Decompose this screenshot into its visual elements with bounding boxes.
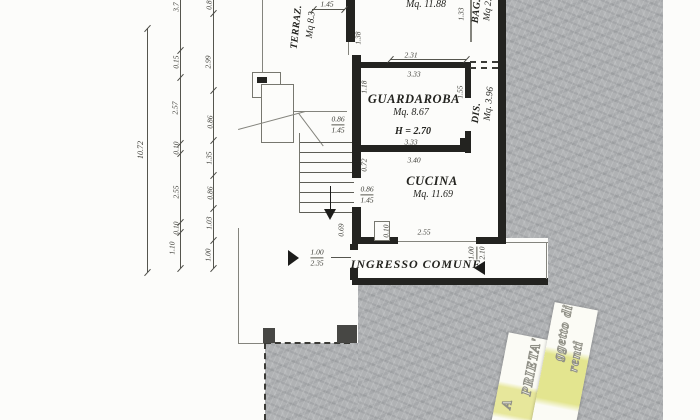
neighbour-wall-block-left [263, 328, 275, 343]
cucina-area-label: Mq. 11.69 [413, 190, 453, 200]
dim-overall: 10.72 [137, 141, 145, 159]
neighbour-wall-block-right [337, 325, 357, 343]
corridor-bottom-wall [352, 278, 548, 285]
dim-inner-6: 1.00 [204, 248, 212, 261]
halftone-bottomleft-block [265, 343, 358, 420]
dim-line-entry-left [331, 257, 351, 258]
dim-cucina-pillar: 0.10 [382, 224, 390, 237]
stair-door-height: 1.45 [331, 124, 344, 135]
stair-down-arrow-icon [324, 209, 336, 220]
cucina-name-label: CUCINA [406, 175, 458, 188]
guardaroba-height-label: H = 2.70 [395, 127, 431, 137]
dim-top-opening: 1.45 [320, 0, 333, 8]
entry-left-door-width: 1.00 [310, 247, 323, 256]
dim-cucina-top: 3.33 [404, 138, 417, 146]
dis-name-label: DIS. [471, 102, 483, 124]
dim-line-guardaroba [390, 59, 466, 60]
dim-tick [210, 265, 217, 272]
dim-cucina-left: 0.72 [360, 158, 368, 171]
dim-guardaroba-top: 2.31 [404, 51, 417, 59]
dim-bagno-door: 1.33 [457, 7, 465, 20]
boundary-dashed-vertical [264, 343, 266, 420]
cucina-bottom-wall-right [476, 237, 506, 244]
stair-door-width: 0.86 [331, 114, 344, 123]
cucina-opening-line [398, 241, 478, 242]
wall-stub [460, 138, 467, 145]
dim-tick [177, 265, 184, 272]
cucina-door-height: 1.45 [360, 194, 373, 205]
dim-inner-5: 1.03 [205, 216, 213, 229]
dim-wall-upper: 1.38 [354, 31, 362, 44]
staircase [299, 133, 354, 213]
guardaroba-area-label: Mq. 8.67 [393, 108, 429, 118]
shaft-wall-bar [257, 77, 267, 83]
neighbour-left-line [238, 228, 239, 343]
corridor-top-line [506, 242, 548, 243]
ingresso-name-label: INGRESSO COMUNE [351, 258, 482, 270]
entry-left-door-marker-icon [288, 250, 299, 266]
dim-wall-lower: 1.18 [360, 80, 368, 93]
dim-tick [144, 269, 151, 276]
dim-cucina-bottom: 2.55 [417, 228, 430, 236]
dim-inner-2: 0.86 [206, 115, 214, 128]
dim-cucina-top2: 3.40 [407, 156, 420, 164]
dim-inner-1: 2.99 [204, 55, 212, 68]
dim-inner-4: 0.86 [206, 186, 214, 199]
east-outer-wall [498, 0, 506, 240]
stair-door-size: 0.86 1.45 [331, 115, 344, 134]
dim-guardaroba-top2: 3.33 [407, 70, 420, 78]
dim-inner-3: 1.35 [205, 151, 213, 164]
shaft-box-large [261, 84, 294, 143]
corridor-end-line [546, 242, 547, 279]
entry-left-door-height: 2.35 [310, 257, 323, 268]
dim-mid-4: 2.55 [172, 185, 180, 198]
cucina-door-width: 0.86 [360, 184, 373, 193]
dim-line-top-opening [312, 9, 345, 10]
neighbour-bottom-line [238, 343, 265, 344]
guardaroba-name-label: GUARDAROBA [368, 93, 460, 106]
soggiorno-area-label: Mq. 11.88 [406, 0, 446, 10]
dis-area-label: Mq. 3.96 [483, 87, 496, 122]
dim-mid-2: 2.57 [171, 101, 179, 114]
bagno-area-label: Mq 2. [483, 0, 495, 22]
dim-line-overall [147, 28, 148, 272]
guardaroba-top-wall [361, 62, 467, 68]
terrazza-area-label: Mq 8.3 [306, 11, 318, 39]
cucina-door-size: 0.86 1.45 [360, 185, 373, 204]
dim-mid-1: 0.15 [172, 55, 180, 68]
dim-mid-6: 1.10 [168, 241, 176, 254]
floor-plan-page: 10.72 3.7 0.15 2.57 0.10 2.55 0.10 1.10 … [0, 0, 700, 420]
dim-mid-0: 3.7 [172, 2, 180, 11]
terrazza-name-label: TERRAZ. [290, 4, 305, 49]
corridor-extension [506, 238, 548, 278]
dim-inner-0: 0.8 [205, 0, 213, 9]
entry-left-door-size: 1.00 2.35 [310, 248, 323, 267]
door-leaf-line [348, 42, 349, 55]
dashed-opening-top [470, 61, 498, 63]
halftone-bottom-block [358, 285, 506, 420]
dim-cucina-corner: 0.69 [337, 223, 345, 236]
dashed-opening-bottom [470, 67, 498, 69]
corridor-left-wall-upper [350, 244, 358, 250]
